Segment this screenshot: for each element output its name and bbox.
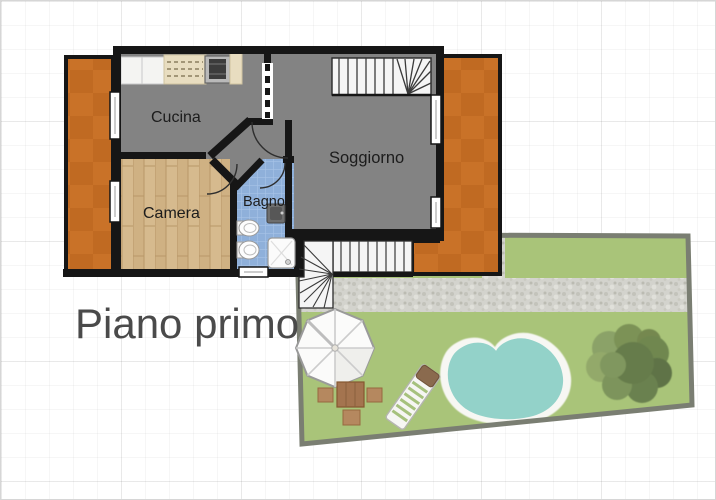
internal-staircase [332, 58, 431, 95]
gazebo [296, 309, 374, 387]
shower-icon [268, 238, 295, 268]
floor-plan-canvas: Cucina Camera Bagno Soggiorno Piano prim… [0, 0, 716, 500]
floor-plan-svg: Cucina Camera Bagno Soggiorno Piano prim… [1, 1, 716, 500]
garden-chair [318, 388, 333, 402]
pool-water [448, 338, 563, 419]
garden-chair [343, 410, 360, 425]
label-soggiorno: Soggiorno [329, 149, 404, 167]
kitchen-counter [121, 53, 242, 84]
label-cucina: Cucina [151, 109, 201, 126]
floor-title: Piano primo [75, 300, 299, 347]
garden-chair [367, 388, 382, 402]
balcony-left [66, 57, 113, 273]
stove-icon [205, 56, 230, 83]
toilet-icon [237, 241, 259, 259]
label-camera: Camera [143, 205, 200, 222]
label-bagno: Bagno [243, 194, 285, 210]
bidet-icon [237, 220, 259, 236]
pool [440, 333, 571, 425]
passage-dashed-opening [262, 63, 273, 119]
gravel-path [299, 278, 691, 312]
garden-table [337, 382, 364, 407]
